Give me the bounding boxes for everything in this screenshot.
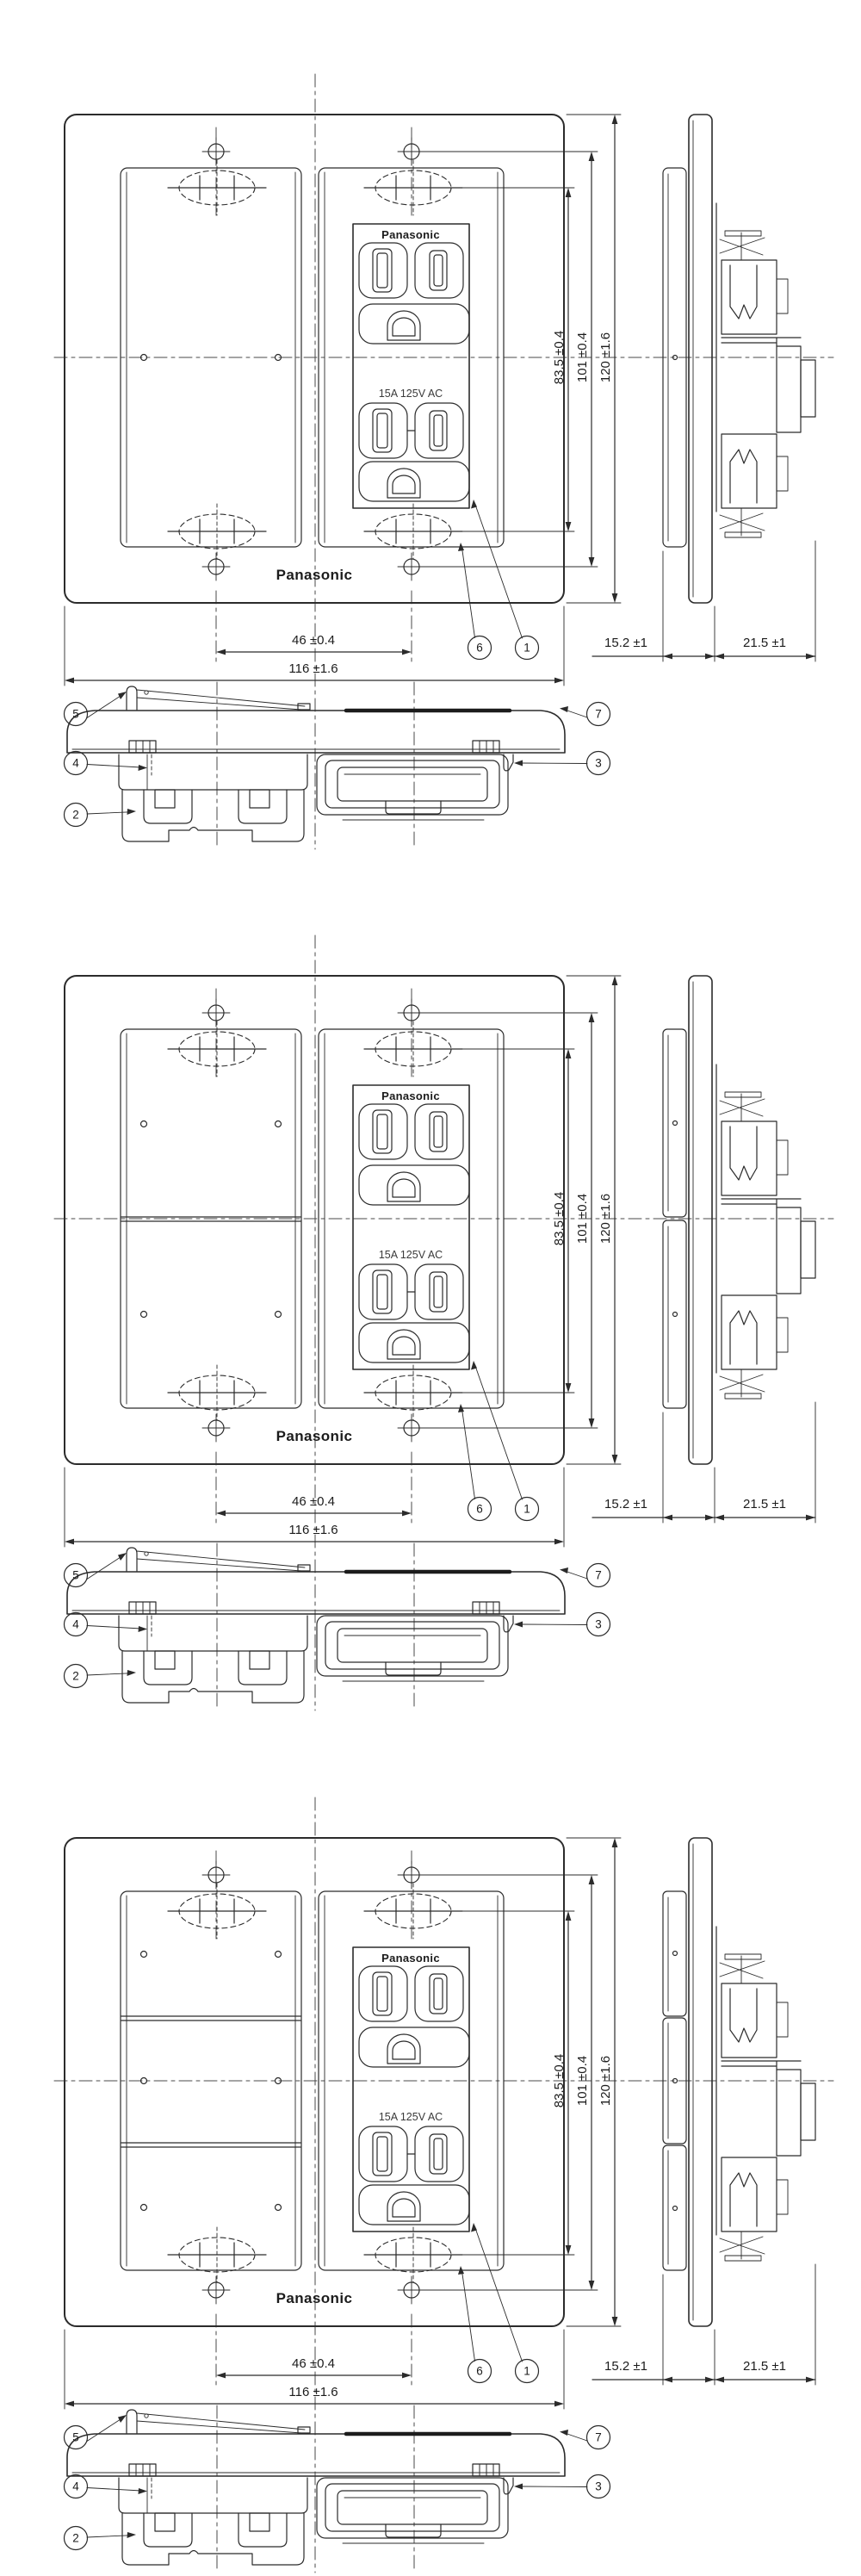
screw-cross-marks: [202, 999, 425, 1442]
dim-screw-width: 46 ±0.4: [292, 633, 335, 648]
callout-6: 6: [458, 2266, 492, 2383]
rating-label: 15A 125V AC: [379, 388, 443, 400]
svg-text:3: 3: [595, 2480, 602, 2493]
plate-profile: [689, 115, 712, 603]
device-body: [716, 1065, 815, 1399]
lower-receptacle: [359, 2126, 469, 2225]
dim-body-depth: 21.5 ±1: [743, 2359, 786, 2374]
side-view: 15.2 ±1 21.5 ±1: [592, 976, 815, 1523]
dim-plate-width: 116 ±1.6: [288, 2385, 338, 2399]
retaining-clips: [129, 2464, 499, 2476]
svg-text:5: 5: [72, 1569, 79, 1582]
callout-3: 3: [514, 752, 610, 775]
retaining-clips: [129, 741, 499, 753]
plate-brand-logo: Panasonic: [276, 2290, 353, 2306]
callout-6: 6: [458, 543, 492, 660]
svg-text:3: 3: [595, 1618, 602, 1631]
outlet-body-section: [317, 2478, 513, 2543]
spring-contact-top: [730, 1127, 757, 1180]
dim-outlet-height: 83.5 ±0.4: [552, 1192, 567, 1245]
mounting-claw-top: [720, 1954, 765, 1983]
callout-3: 3: [514, 1613, 610, 1636]
cover-divider-3section: [121, 2016, 300, 2147]
callout-1: 1: [471, 2223, 539, 2383]
callout-7: 7: [560, 2426, 610, 2449]
mounting-claw-bottom: [720, 2231, 765, 2261]
callout-5: 5: [65, 692, 127, 726]
plate-section: [67, 2434, 565, 2476]
svg-text:6: 6: [476, 1503, 483, 1516]
device-body: [716, 1927, 815, 2261]
svg-text:5: 5: [72, 2431, 79, 2444]
svg-text:7: 7: [595, 2431, 602, 2444]
dim-plate-width: 116 ±1.6: [288, 661, 338, 676]
dim-outlet-height: 83.5 ±0.4: [552, 331, 567, 384]
lower-receptacle: [359, 1264, 469, 1362]
switch-body-section: [119, 754, 307, 841]
side-view: 15.2 ±1 21.5 ±1: [592, 1838, 815, 2385]
section-view: 5 7 4 2 3: [65, 2405, 610, 2571]
dim-plate-height: 120 ±1.6: [598, 1194, 613, 1244]
drawing-sheet: Panasonic 15A 125V AC: [0, 896, 861, 1714]
callout-6: 6: [458, 1404, 492, 1521]
dim-screw-height: 101 ±0.4: [575, 1194, 590, 1244]
drawing-sheet: Panasonic 15A 125V AC: [0, 34, 861, 853]
center-boss: [777, 2070, 801, 2156]
callout-2: 2: [65, 1665, 137, 1688]
drawing-group-1-single-cover: Panasonic 15A 125V AC: [0, 34, 861, 853]
upper-receptacle: [359, 1104, 469, 1205]
svg-text:4: 4: [72, 2480, 79, 2493]
callout-2: 2: [65, 804, 137, 827]
plate-profile: [689, 1838, 712, 2326]
drawing-group-3-three-section-cover: Panasonic 15A 125V AC: [0, 1758, 861, 2576]
switch-body-section: [119, 2478, 307, 2565]
mounting-claw-top: [720, 231, 765, 260]
callout-3: 3: [514, 2475, 610, 2498]
svg-text:7: 7: [595, 1569, 602, 1582]
dim-body-depth: 21.5 ±1: [743, 1497, 786, 1511]
callout-5: 5: [65, 2415, 127, 2449]
callout-2: 2: [65, 2527, 137, 2550]
open-cover-flap: [127, 686, 310, 710]
upper-receptacle: [359, 243, 469, 344]
callout-4: 4: [65, 2475, 148, 2498]
drawing-sheet: Panasonic 15A 125V AC: [0, 1758, 861, 2576]
center-boss: [777, 346, 801, 432]
plate-profile: [689, 976, 712, 1464]
outlet-brand-label: Panasonic: [381, 1089, 440, 1102]
upper-receptacle: [359, 1966, 469, 2067]
outlet-body-section: [317, 1616, 513, 1681]
plate-brand-logo: Panasonic: [276, 1428, 353, 1444]
outlet-brand-label: Panasonic: [381, 1952, 440, 1965]
open-cover-flap: [127, 1548, 310, 1571]
screw-cross-marks: [202, 1861, 425, 2304]
depth-dimensions: 15.2 ±1 21.5 ±1: [592, 1402, 815, 1523]
svg-text:2: 2: [72, 2532, 79, 2545]
mounting-claw-bottom: [720, 1369, 765, 1399]
screw-cross-marks: [202, 138, 425, 580]
callout-7: 7: [560, 1564, 610, 1587]
outlet-brand-label: Panasonic: [381, 228, 440, 241]
callout-1: 1: [471, 1361, 539, 1521]
device-body: [716, 203, 815, 537]
open-cover-flap: [127, 2410, 310, 2433]
callout-7: 7: [560, 703, 610, 726]
horizontal-dimensions: 46 ±0.4 116 ±1.6: [65, 2330, 564, 2409]
dim-outlet-height: 83.5 ±0.4: [552, 2054, 567, 2107]
side-view: 15.2 ±1 21.5 ±1: [592, 115, 815, 661]
depth-dimensions: 15.2 ±1 21.5 ±1: [592, 2264, 815, 2385]
dim-plate-height: 120 ±1.6: [598, 2056, 613, 2106]
svg-text:6: 6: [476, 642, 483, 655]
plate-brand-logo: Panasonic: [276, 567, 353, 583]
svg-text:1: 1: [523, 2365, 530, 2378]
callout-4: 4: [65, 1613, 148, 1636]
callout-5: 5: [65, 1553, 127, 1587]
svg-text:4: 4: [72, 757, 79, 770]
drawing-group-2-two-section-cover: Panasonic 15A 125V AC: [0, 896, 861, 1714]
plate-section: [67, 711, 565, 753]
svg-text:2: 2: [72, 1670, 79, 1683]
dim-plate-width: 116 ±1.6: [288, 1523, 338, 1537]
section-view: 5 7 4 2 3: [65, 682, 610, 847]
outlet-face: [353, 1085, 469, 1369]
svg-text:6: 6: [476, 2365, 483, 2378]
dim-screw-height: 101 ±0.4: [575, 332, 590, 382]
svg-text:1: 1: [523, 642, 530, 655]
dim-screw-height: 101 ±0.4: [575, 2056, 590, 2106]
dim-screw-width: 46 ±0.4: [292, 1494, 335, 1509]
spring-contact-top: [730, 1989, 757, 2042]
plate-section: [67, 1572, 565, 1614]
mounting-claw-bottom: [720, 508, 765, 537]
outlet-face: [353, 1947, 469, 2231]
svg-text:5: 5: [72, 708, 79, 721]
rating-label: 15A 125V AC: [379, 1249, 443, 1261]
retaining-clips: [129, 1602, 499, 1614]
dim-plate-depth: 15.2 ±1: [604, 1497, 647, 1511]
svg-text:1: 1: [523, 1503, 530, 1516]
outlet-body-section: [317, 754, 513, 820]
spring-contact-bottom: [730, 1311, 757, 1364]
dim-plate-depth: 15.2 ±1: [604, 636, 647, 650]
section-view: 5 7 4 2 3: [65, 1543, 610, 1709]
horizontal-dimensions: 46 ±0.4 116 ±1.6: [65, 606, 564, 686]
callout-1: 1: [471, 500, 539, 660]
svg-text:7: 7: [595, 708, 602, 721]
depth-dimensions: 15.2 ±1 21.5 ±1: [592, 541, 815, 661]
dim-screw-width: 46 ±0.4: [292, 2356, 335, 2371]
rating-label: 15A 125V AC: [379, 2111, 443, 2123]
outlet-face: [353, 224, 469, 508]
dim-body-depth: 21.5 ±1: [743, 636, 786, 650]
callout-4: 4: [65, 752, 148, 775]
svg-text:2: 2: [72, 809, 79, 822]
dim-plate-height: 120 ±1.6: [598, 332, 613, 382]
switch-body-section: [119, 1616, 307, 1703]
spring-contact-top: [730, 265, 757, 319]
spring-contact-bottom: [730, 2173, 757, 2226]
spring-contact-bottom: [730, 450, 757, 503]
svg-text:3: 3: [595, 757, 602, 770]
horizontal-dimensions: 46 ±0.4 116 ±1.6: [65, 1468, 564, 1547]
lower-receptacle: [359, 403, 469, 501]
dim-plate-depth: 15.2 ±1: [604, 2359, 647, 2374]
mounting-claw-top: [720, 1092, 765, 1121]
drawing-page: Panasonic 15A 125V AC: [0, 0, 861, 2576]
center-boss: [777, 1207, 801, 1294]
svg-text:4: 4: [72, 1618, 79, 1631]
